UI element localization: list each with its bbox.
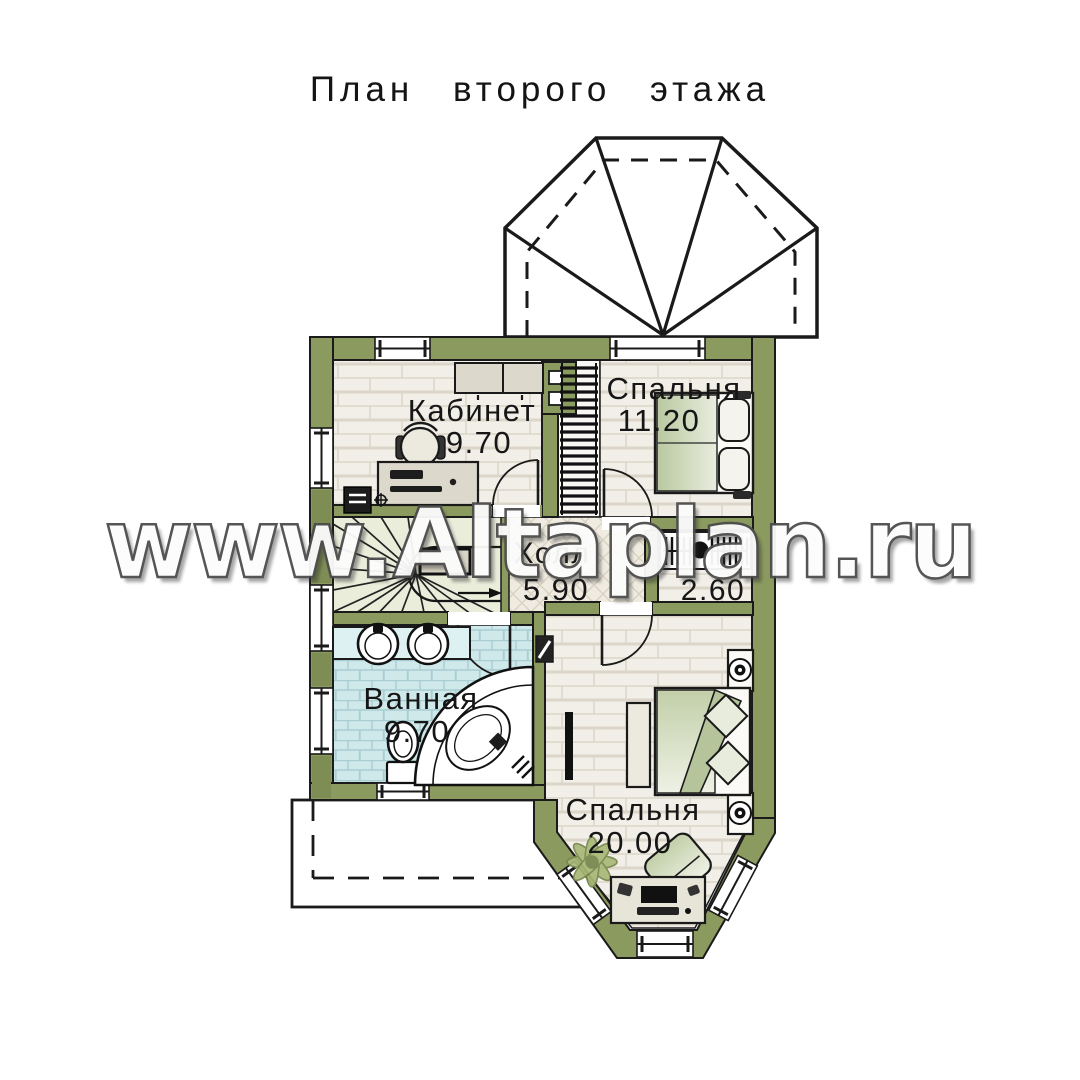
tv <box>565 712 573 780</box>
window-top-1 <box>375 337 430 360</box>
bedroom2-label: Спальня <box>565 792 700 827</box>
office-area: 9.70 <box>446 425 512 460</box>
bathroom-area: 9.70 <box>384 714 450 749</box>
computer-desk <box>611 877 705 923</box>
floor-plan-drawing: Кабинет 9.70 Спальня 11.20 Холл 5.90 2.6… <box>0 0 1080 1080</box>
bathroom-sink <box>358 624 398 664</box>
hall-label: Холл <box>514 537 591 570</box>
nightstand <box>728 793 753 834</box>
hall-area: 5.90 <box>523 572 589 607</box>
window-left-3 <box>310 688 333 754</box>
bedroom1-area: 11.20 <box>618 403 701 438</box>
turret-roof-outline <box>505 138 817 337</box>
office-desk <box>378 462 478 505</box>
floor-plan-page: План второго этажа <box>0 0 1080 1080</box>
bathroom-sink <box>408 624 448 664</box>
office-label: Кабинет <box>408 393 536 428</box>
winder-staircase <box>333 517 505 622</box>
vanity-counter <box>333 627 470 659</box>
bedroom2-area: 20.00 <box>587 825 672 860</box>
wardrobe-area: 2.60 <box>681 574 745 607</box>
page-title: План второго этажа <box>0 70 1080 110</box>
window-left-1 <box>310 428 333 488</box>
wardrobe-hanger-rail <box>660 532 751 569</box>
bed-bench <box>627 703 650 787</box>
bedroom2-bed <box>655 688 750 795</box>
stair-landing <box>420 549 470 574</box>
window-left-2 <box>310 585 333 651</box>
nightstand <box>728 650 753 691</box>
window-bay-bottom <box>637 931 693 957</box>
window-top-2 <box>610 337 705 360</box>
bathroom-label: Ванная <box>363 681 478 716</box>
flue-box <box>542 362 576 414</box>
duct-panel <box>536 636 553 662</box>
bedroom1-label: Спальня <box>606 371 741 406</box>
